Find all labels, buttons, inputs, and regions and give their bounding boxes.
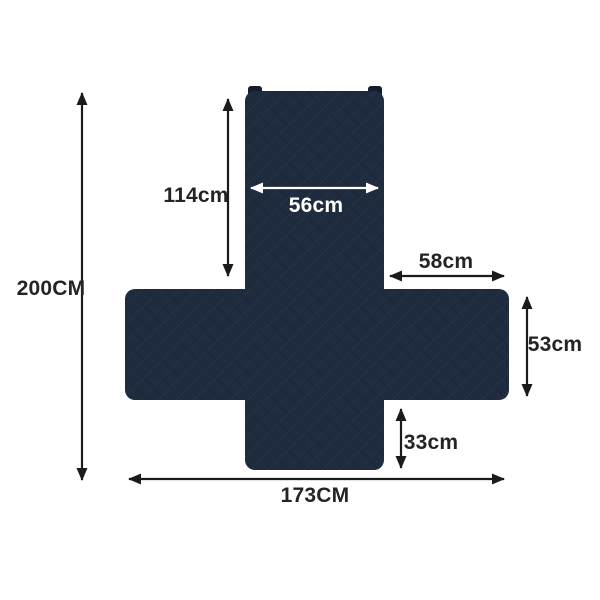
cover-armrest-panel [125, 289, 509, 400]
dim-label-back-width: 56cm [289, 194, 344, 217]
dimension-diagram-canvas: 200CM 114cm 56cm 58cm 53cm 33cm [0, 0, 600, 600]
dim-back-height: 114cm [163, 99, 228, 276]
dim-front-skirt-height: 33cm [401, 409, 458, 468]
dim-arm-length: 58cm [390, 250, 504, 276]
dim-label-overall-height: 200CM [17, 277, 86, 300]
dim-label-arm-height: 53cm [528, 333, 583, 356]
dim-arm-height: 53cm [527, 297, 582, 396]
sofa-cover-dimension-diagram: 200CM 114cm 56cm 58cm 53cm 33cm [0, 0, 600, 600]
dim-label-front-skirt-height: 33cm [404, 431, 459, 454]
cover-back-and-seat-panel [245, 91, 384, 470]
dim-label-back-height: 114cm [163, 184, 228, 207]
dim-label-arm-length: 58cm [419, 250, 474, 273]
dim-label-overall-width: 173CM [281, 484, 350, 507]
dim-overall-width: 173CM [129, 479, 504, 507]
dim-overall-height: 200CM [17, 93, 86, 480]
sofa-cover-shape [125, 86, 509, 470]
